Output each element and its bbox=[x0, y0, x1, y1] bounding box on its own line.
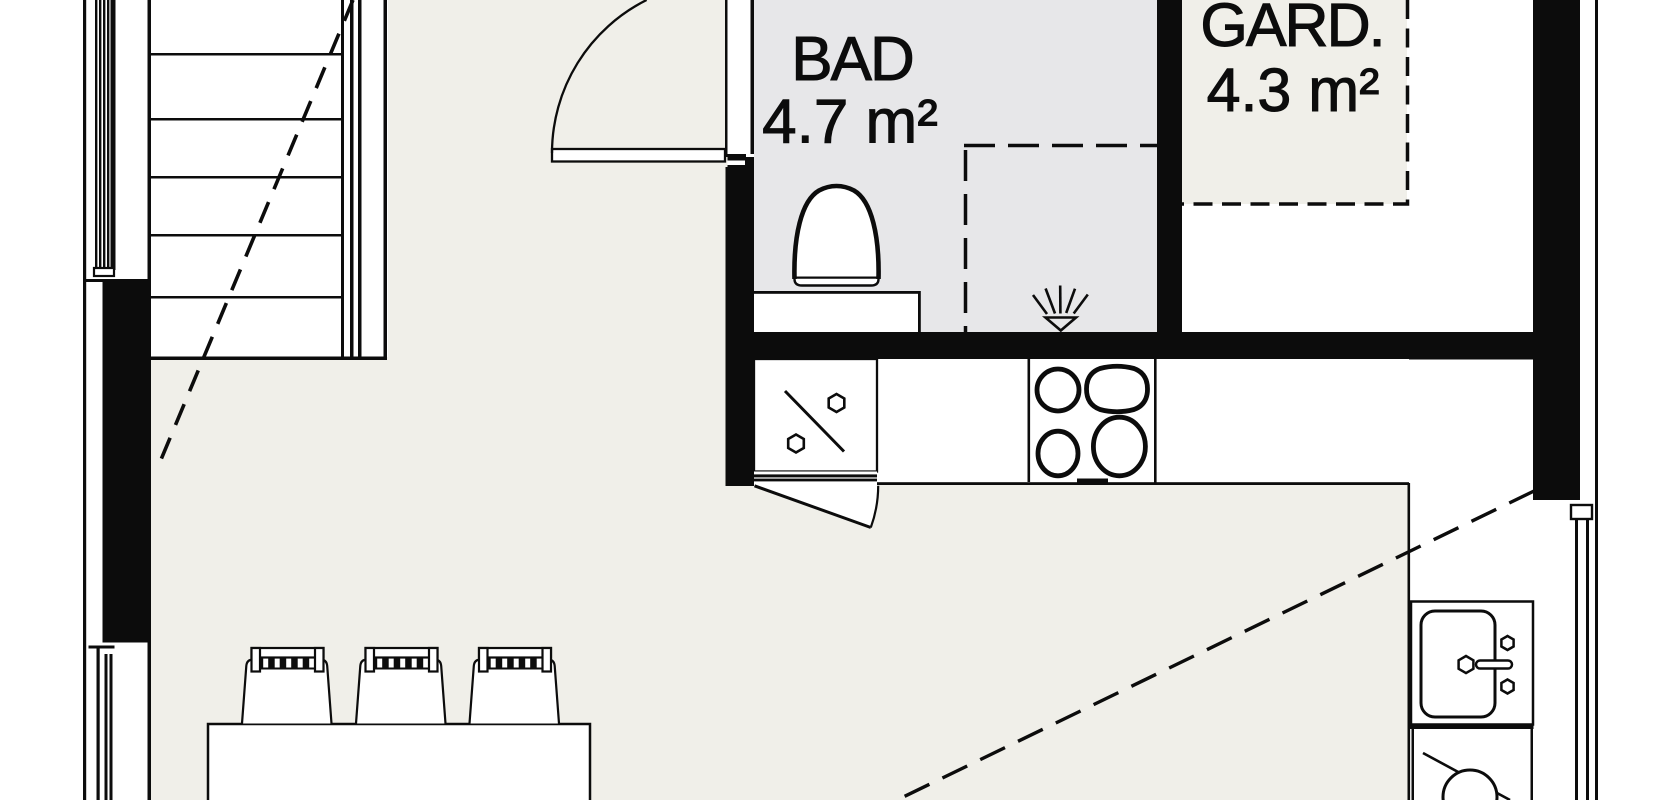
svg-text:BAD: BAD bbox=[791, 25, 912, 94]
svg-text:4.7 m²: 4.7 m² bbox=[762, 88, 938, 157]
svg-text:GARD.: GARD. bbox=[1200, 0, 1383, 59]
svg-text:4.3 m²: 4.3 m² bbox=[1207, 56, 1380, 124]
